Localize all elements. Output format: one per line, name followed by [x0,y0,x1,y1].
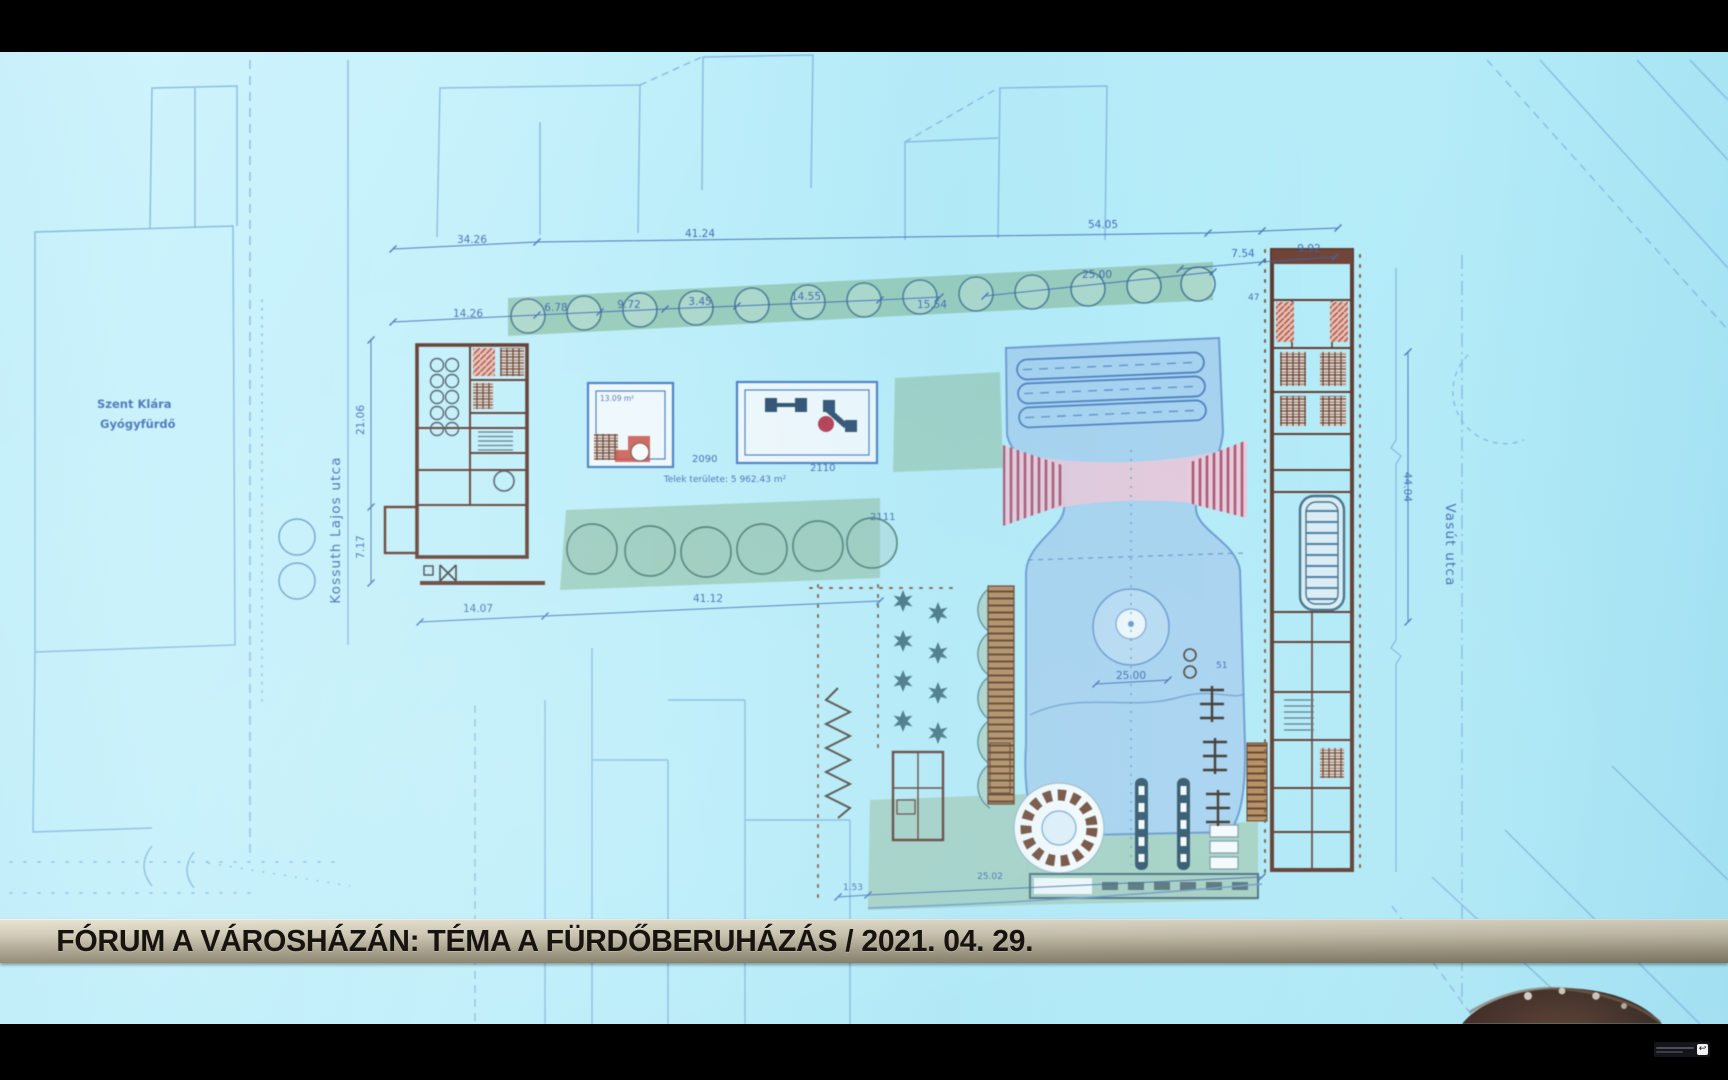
player-watermark: ↩ [1654,1042,1710,1057]
dimension-label: 9.92 [1297,243,1320,255]
parcel-number: 2110 [810,463,835,474]
parcel-number: 2090 [692,454,717,465]
existing-building-label: Szent Klára [97,397,172,411]
dimension-label: 14.07 [463,603,493,615]
street-vasut [1391,255,1524,1005]
dimension-label: 25.02 [977,872,1003,882]
small-label: 51 [1216,661,1227,671]
indoor-pool-ladder [1300,496,1344,610]
caption-text: FÓRUM A VÁROSHÁZÁN: TÉMA A FÜRDŐBERUHÁZÁ… [0,923,1033,959]
parcel-number: 2111 [870,512,895,523]
street-tree [279,519,315,555]
spa-circle [1014,783,1104,873]
dimension-label: 34.26 [457,234,487,246]
projected-site-plan: Szent Klára Gyógyfürdő Kossuth Lajos utc… [0,52,1728,1024]
green-patch-upper [893,372,1003,472]
fountain-circle [1093,589,1169,665]
stair-strip [990,743,1010,793]
table-circles [431,359,459,436]
street-label-vasut: Vasút utca [1442,503,1458,586]
pavilion-playground [737,382,877,463]
dimension-label: 21.06 [355,405,367,435]
caption-bar: FÓRUM A VÁROSHÁZÁN: TÉMA A FÜRDŐBERUHÁZÁ… [0,919,1728,963]
zigzag-fence [826,688,850,818]
person-head-silhouette [1454,988,1670,1024]
dimension-label: 1.53 [843,883,863,893]
watermark-text-lines [1656,1047,1694,1053]
dimension-label: 6.78 [544,302,567,314]
dimension-label: 54.05 [1088,219,1118,231]
dimension-label: 3.45 [688,296,711,308]
right-building [1272,250,1352,870]
left-building [385,345,545,583]
dimension-label: 7.17 [355,535,367,558]
dimension-label: 14.55 [791,291,821,303]
small-label: 13.09 m² [600,394,634,403]
dimension-label: 25.00 [1116,670,1146,682]
area-note: Telek területe: 5 962.43 m² [663,475,787,485]
dimension-label: 44.04 [1401,472,1413,502]
dimension-label: 41.12 [693,593,723,605]
dimension-label: 7.54 [1231,248,1255,260]
dimension-label: 41.24 [685,228,715,240]
dimension-label: 9.72 [617,299,640,311]
small-label: 47 [1248,293,1259,303]
street-tree [279,563,315,599]
dimension-label: 25.00 [1082,269,1112,281]
existing-building-label: Gyógyfürdő [100,417,176,431]
street-label-kossuth: Kossuth Lajos utca [328,456,344,603]
star-garden [894,590,948,744]
cursor-arrow-icon: ↩ [1697,1044,1708,1055]
dimension-label: 14.26 [453,308,483,320]
dimension-label: 15.54 [917,299,947,311]
